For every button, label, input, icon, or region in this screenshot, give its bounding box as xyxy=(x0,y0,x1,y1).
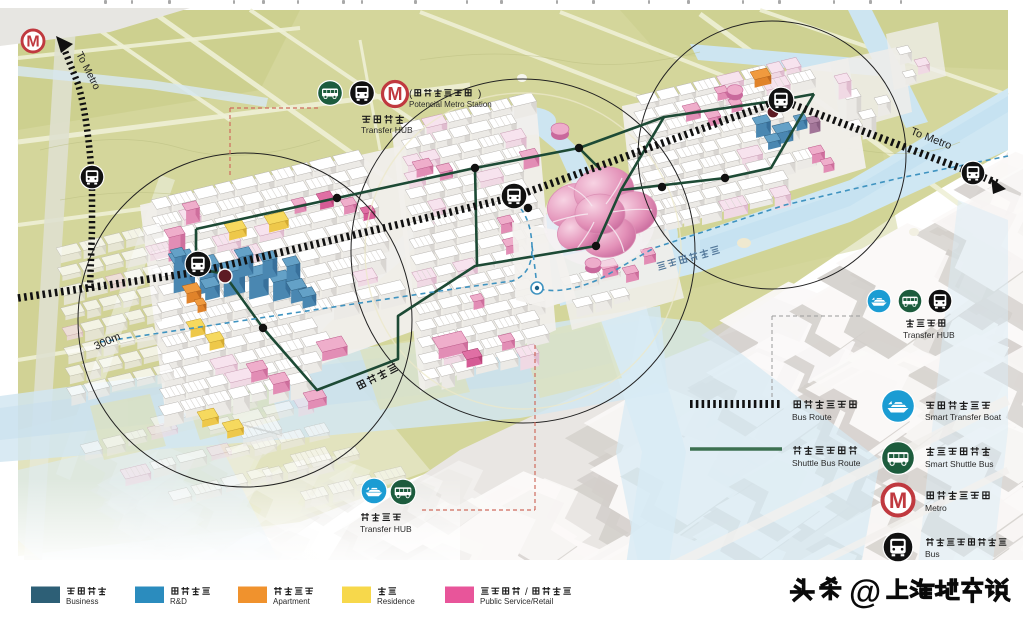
svg-text:Residence: Residence xyxy=(377,597,415,606)
svg-text:Transfer HUB: Transfer HUB xyxy=(360,524,412,534)
svg-text:): ) xyxy=(478,89,481,100)
svg-text:Apartment: Apartment xyxy=(273,597,311,606)
svg-text:M: M xyxy=(889,488,907,513)
svg-text:Potencial Metro Station: Potencial Metro Station xyxy=(409,100,492,109)
svg-text:M: M xyxy=(26,34,39,51)
svg-text:Smart Transfer Boat: Smart Transfer Boat xyxy=(925,412,1002,422)
svg-text:R&D: R&D xyxy=(170,597,187,606)
svg-text:Metro: Metro xyxy=(925,503,947,513)
svg-text:Shuttle Bus Route: Shuttle Bus Route xyxy=(792,458,861,468)
svg-text:Transfer HUB: Transfer HUB xyxy=(903,330,955,340)
svg-text:Smart Shuttle Bus: Smart Shuttle Bus xyxy=(925,459,994,469)
svg-text:M: M xyxy=(388,84,403,104)
svg-text:Transfer HUB: Transfer HUB xyxy=(361,125,413,135)
svg-text:Public Service/Retail: Public Service/Retail xyxy=(480,597,554,606)
svg-text:Bus Route: Bus Route xyxy=(792,412,832,422)
svg-text:Business: Business xyxy=(66,597,98,606)
svg-text:Bus: Bus xyxy=(925,549,940,559)
svg-text:@: @ xyxy=(849,573,881,610)
